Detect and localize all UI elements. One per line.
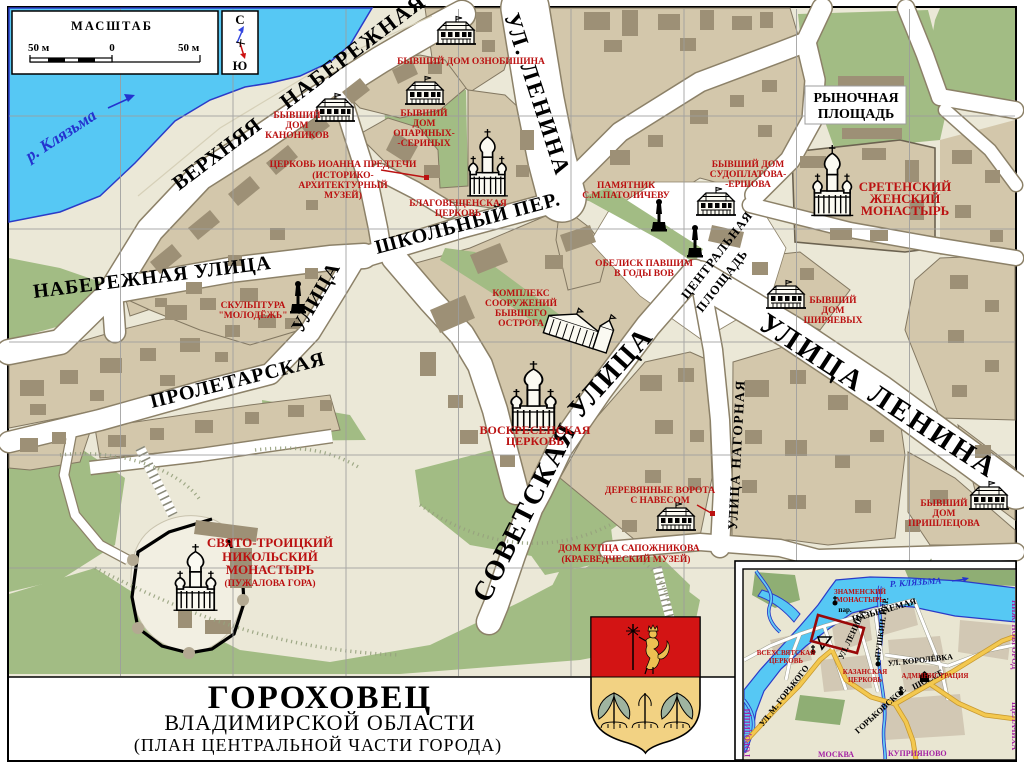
svg-text:БЫВШИЙ: БЫВШИЙ — [809, 294, 857, 306]
svg-text:БЫВШЕГО: БЫВШЕГО — [495, 309, 547, 319]
svg-text:МАСШТАБ: МАСШТАБ — [71, 19, 153, 33]
svg-text:ДОМ: ДОМ — [822, 306, 845, 316]
svg-text:(ИСТОРИКО-: (ИСТОРИКО- — [312, 170, 373, 181]
svg-text:ВЛАДИМИРСКОЙ ОБЛАСТИ: ВЛАДИМИРСКОЙ ОБЛАСТИ — [164, 710, 475, 735]
svg-text:ОБЕЛИСК ПАВШИМ: ОБЕЛИСК ПАВШИМ — [595, 259, 693, 269]
svg-text:СУДОПЛАТОВА-: СУДОПЛАТОВА- — [710, 170, 787, 180]
svg-text:С НАВЕСОМ: С НАВЕСОМ — [630, 496, 689, 506]
svg-text:ОСТРОГА: ОСТРОГА — [498, 319, 544, 329]
svg-text:ПАМЯТНИК: ПАМЯТНИК — [597, 181, 655, 191]
svg-text:АДМИНИСТРАЦИЯ: АДМИНИСТРАЦИЯ — [902, 672, 969, 680]
svg-text:КАЗАНСКАЯ: КАЗАНСКАЯ — [843, 668, 887, 676]
svg-text:-ЕРШОВА: -ЕРШОВА — [725, 180, 771, 190]
svg-text:ЦЕРКОВЬ: ЦЕРКОВЬ — [506, 434, 564, 448]
svg-text:Ю: Ю — [233, 58, 248, 73]
svg-text:С.М.ПАТОЛИЧЕВУ: С.М.ПАТОЛИЧЕВУ — [582, 191, 669, 201]
svg-text:-СЕРИНЫХ: -СЕРИНЫХ — [397, 139, 450, 149]
svg-text:пар.: пар. — [838, 606, 851, 614]
svg-text:(ПЛАН ЦЕНТРАЛЬНОЙ ЧАСТИ ГОРОДА: (ПЛАН ЦЕНТРАЛЬНОЙ ЧАСТИ ГОРОДА) — [134, 735, 502, 756]
svg-text:ШИРЯЕВЫХ: ШИРЯЕВЫХ — [804, 316, 863, 326]
svg-text:КУПРИЯНОВО: КУПРИЯНОВО — [888, 749, 947, 758]
svg-text:ДОМ: ДОМ — [413, 119, 436, 129]
svg-text:ЦЕРКОВЬ: ЦЕРКОВЬ — [769, 657, 803, 665]
svg-text:50 м: 50 м — [178, 42, 200, 54]
svg-text:СВЯТО-ТРОИЦКИЙ: СВЯТО-ТРОИЦКИЙ — [207, 535, 333, 550]
svg-text:КАНОНИКОВ: КАНОНИКОВ — [265, 131, 329, 141]
svg-text:БЛАГОВЕЩЕНСКАЯ: БЛАГОВЕЩЕНСКАЯ — [409, 199, 507, 209]
svg-text:МОНАСТЫРЬ: МОНАСТЫРЬ — [836, 596, 884, 604]
svg-text:ЦЕРКОВЬ ИОАННА ПРЕДТЕЧИ: ЦЕРКОВЬ ИОАННА ПРЕДТЕЧИ — [270, 160, 417, 170]
svg-text:СКУЛЬПТУРА: СКУЛЬПТУРА — [221, 301, 286, 311]
svg-text:ДОМ: ДОМ — [933, 509, 956, 519]
svg-text:ГОРОДИЩИ: ГОРОДИЩИ — [743, 708, 752, 757]
svg-text:МУЗЕЙ): МУЗЕЙ) — [324, 189, 362, 201]
svg-text:АРХИТЕКТУРНЫЙ: АРХИТЕКТУРНЫЙ — [298, 179, 388, 191]
svg-text:ДОМ: ДОМ — [286, 121, 309, 131]
svg-text:МОСКВА: МОСКВА — [818, 750, 854, 759]
svg-text:ЦЕРКОВЬ: ЦЕРКОВЬ — [435, 209, 481, 219]
svg-text:ДЕРЕВЯННЫЕ ВОРОТА: ДЕРЕВЯННЫЕ ВОРОТА — [605, 486, 715, 496]
svg-text:КОМПЛЕКС: КОМПЛЕКС — [492, 289, 549, 299]
svg-text:СООРУЖЕНИЙ: СООРУЖЕНИЙ — [485, 297, 558, 309]
svg-text:ОПАРИНЫХ-: ОПАРИНЫХ- — [393, 129, 455, 139]
svg-text:БЫВШИЙ: БЫВШИЙ — [920, 497, 968, 509]
svg-text:ПЛОЩАДЬ: ПЛОЩАДЬ — [818, 107, 895, 122]
svg-text:50 м: 50 м — [28, 42, 50, 54]
svg-text:С: С — [235, 12, 244, 27]
svg-text:ЦЕРКОВЬ: ЦЕРКОВЬ — [848, 676, 882, 684]
svg-text:(ПУЖАЛОВА ГОРА): (ПУЖАЛОВА ГОРА) — [224, 578, 315, 589]
svg-text:0: 0 — [109, 42, 115, 54]
svg-text:В ГОДЫ ВОВ: В ГОДЫ ВОВ — [614, 269, 674, 279]
svg-text:МОНАСТЫРЬ: МОНАСТЫРЬ — [226, 562, 315, 577]
svg-text:(КРАЕВЕДЧЕСКИЙ МУЗЕЙ): (КРАЕВЕДЧЕСКИЙ МУЗЕЙ) — [562, 553, 691, 565]
svg-text:ПРИШЛЕЦОВА: ПРИШЛЕЦОВА — [908, 519, 980, 529]
svg-text:РЫНОЧНАЯ: РЫНОЧНАЯ — [813, 91, 898, 106]
svg-text:ДОМ КУПЦА САПОЖНИКОВА: ДОМ КУПЦА САПОЖНИКОВА — [558, 544, 699, 554]
svg-text:БЫВШИЙ ДОМ: БЫВШИЙ ДОМ — [712, 158, 784, 170]
svg-text:БЫВШИЙ: БЫВШИЙ — [400, 107, 448, 119]
svg-text:ВСЕХСВЯТСКАЯ: ВСЕХСВЯТСКАЯ — [757, 649, 816, 657]
svg-text:ЗНАМЕНСКИЙ: ЗНАМЕНСКИЙ — [834, 588, 886, 596]
svg-text:МОНАСТЫРЬ: МОНАСТЫРЬ — [861, 203, 950, 218]
svg-text:БЫВШИЙ: БЫВШИЙ — [273, 109, 321, 121]
svg-text:БЫВШИЙ ДОМ ОЗНОБИШИНА: БЫВШИЙ ДОМ ОЗНОБИШИНА — [397, 55, 545, 67]
